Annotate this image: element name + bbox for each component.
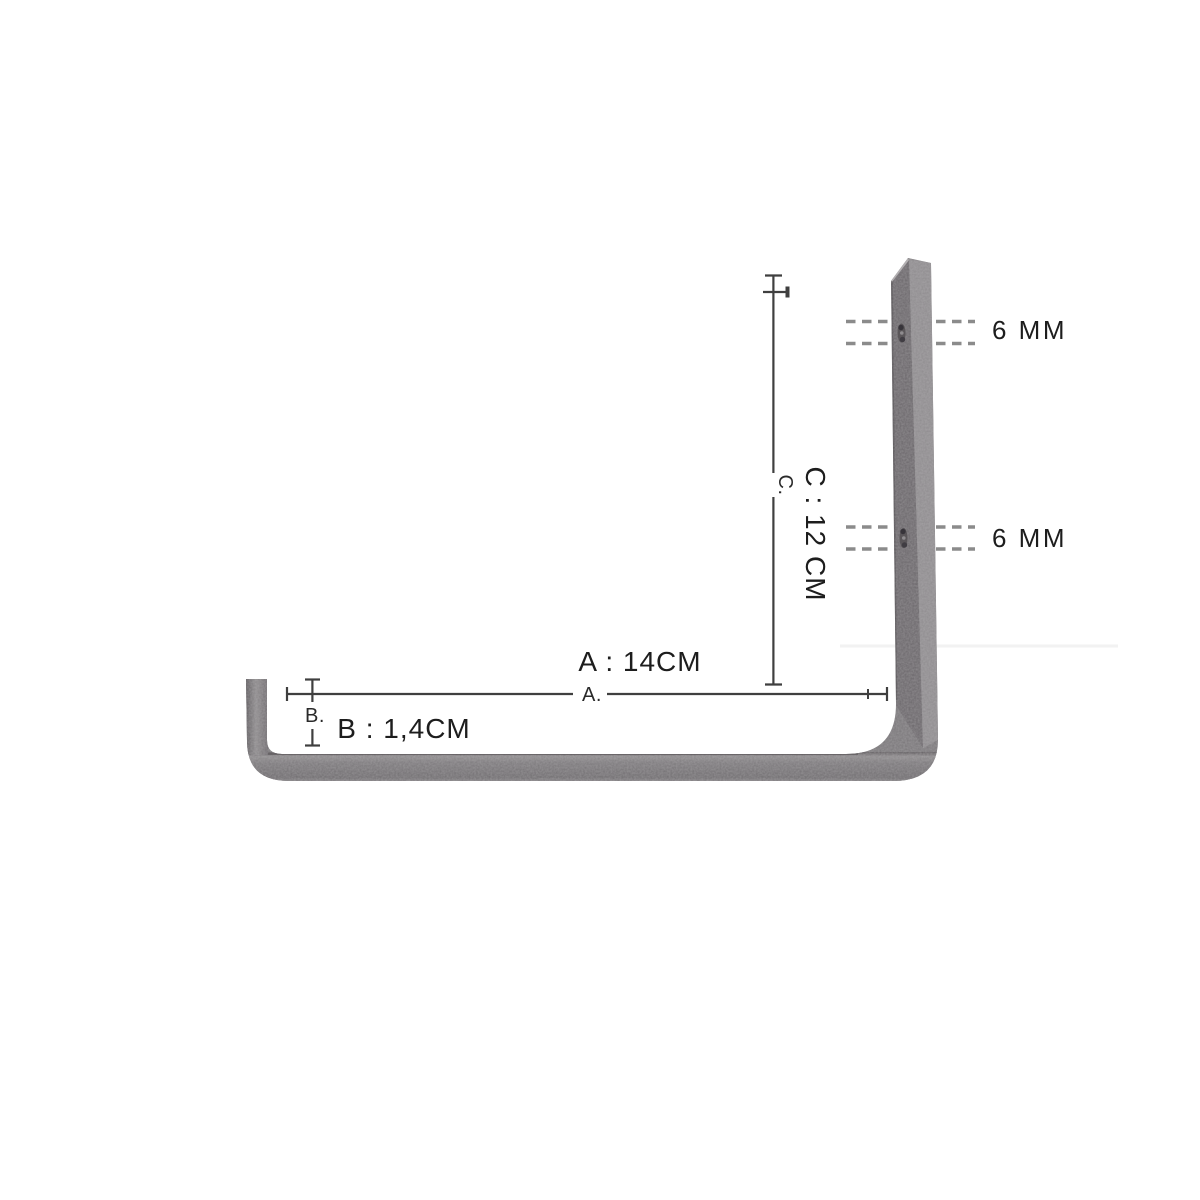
dimension-a-title: A : 14CM <box>578 646 701 677</box>
dimension-b-title: B : 1,4CM <box>337 713 470 744</box>
dimension-a-tick-label: A. <box>582 684 602 706</box>
dimension-c-tick-label: C. <box>774 475 796 496</box>
bracket-diagram-svg: C. C : 12 CM A. A : 14CM B. B : 1,4CM 6 … <box>0 0 1200 1200</box>
dimension-b-tick-label: B. <box>305 705 325 727</box>
screw-hole-top <box>898 324 906 343</box>
dimension-c-title: C : 12 CM <box>800 466 831 601</box>
diagram-canvas: C. C : 12 CM A. A : 14CM B. B : 1,4CM 6 … <box>0 0 1200 1200</box>
hole-bottom-label: 6 MM <box>992 523 1067 553</box>
hole-top-label: 6 MM <box>992 315 1067 345</box>
screw-hole-bottom <box>900 528 908 548</box>
